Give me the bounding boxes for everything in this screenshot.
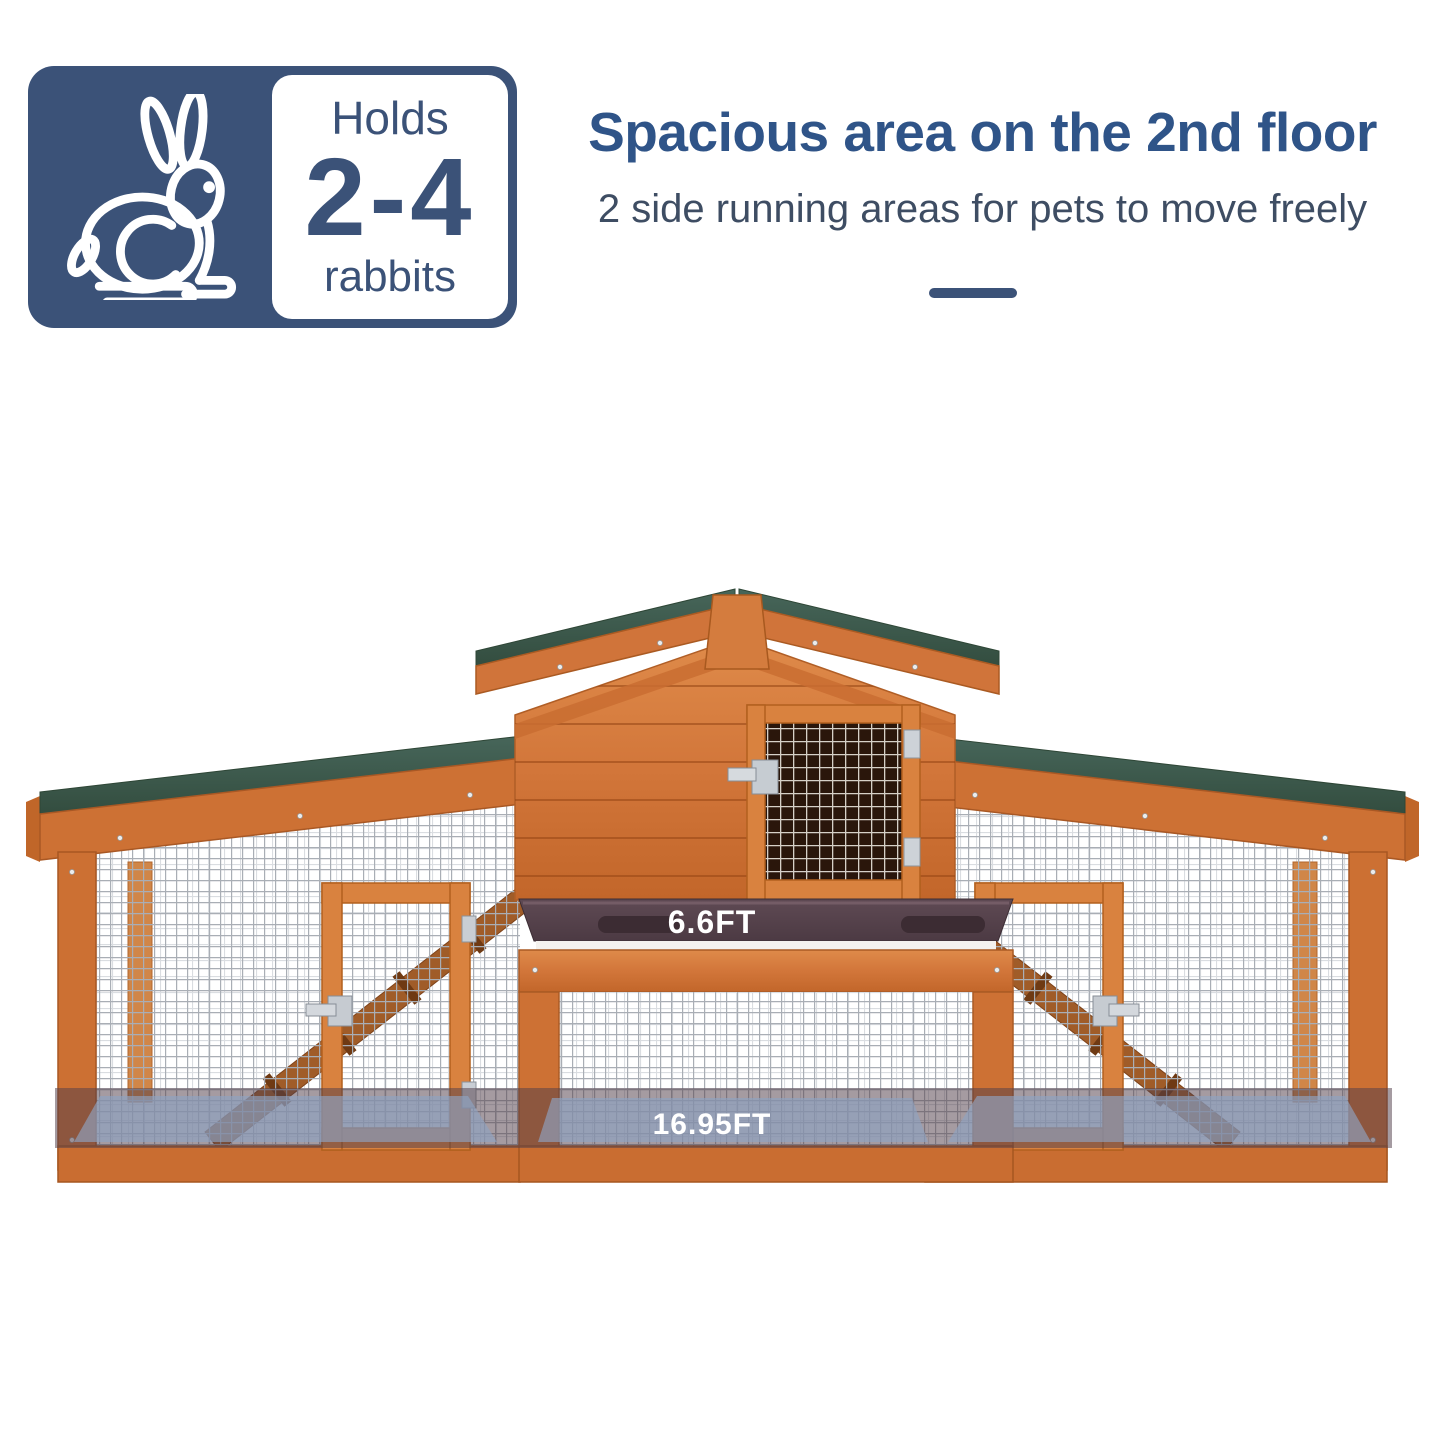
header: Spacious area on the 2nd floor 2 side ru…: [520, 104, 1445, 230]
page-title: Spacious area on the 2nd floor: [520, 104, 1445, 162]
capacity-holds-label: Holds: [331, 94, 449, 142]
floor-highlight-right: [948, 1096, 1371, 1142]
dimension-overlay: 16.95FT: [55, 1088, 1392, 1148]
upper-width-label: 6.6FT: [668, 904, 757, 940]
hinge-icon: [904, 838, 920, 866]
product-marketing-image: Holds 2-4 rabbits Spacious area on the 2…: [0, 0, 1445, 1445]
rabbit-icon-wrap: [42, 80, 282, 314]
pullout-tray: 6.6FT: [519, 899, 1013, 941]
page-subtitle: 2 side running areas for pets to move fr…: [520, 188, 1445, 230]
divider-dash: [929, 288, 1017, 298]
house-door: [728, 705, 920, 900]
rabbit-icon: [63, 94, 261, 300]
hinge-icon: [462, 916, 476, 942]
rabbit-hutch-photo: 6.6FT 16.95FT: [0, 560, 1445, 1240]
hinge-icon: [904, 730, 920, 758]
roof-keystone: [705, 595, 769, 669]
floor-highlight-left: [74, 1096, 497, 1142]
capacity-badge: Holds 2-4 rabbits: [28, 66, 517, 328]
left-bottom-rail: [58, 1146, 520, 1182]
capacity-value: 2-4: [305, 146, 476, 251]
tray-handle: [901, 916, 985, 933]
capacity-card: Holds 2-4 rabbits: [272, 75, 508, 319]
total-width-label: 16.95FT: [653, 1108, 772, 1141]
capacity-animal-label: rabbits: [324, 254, 456, 300]
